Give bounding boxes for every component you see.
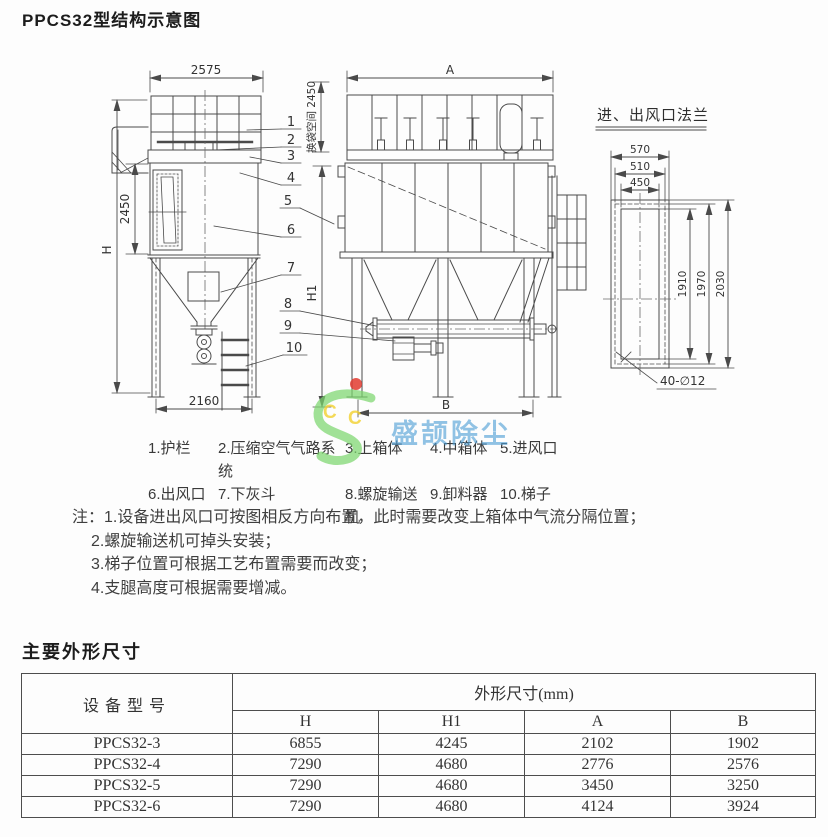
cell-B: 2576: [671, 755, 816, 776]
flange-view-title: 进、出风口法兰: [597, 107, 709, 124]
legend-item: 3.上箱体: [345, 437, 430, 483]
dim-label-450: 450: [630, 177, 650, 189]
cell-H: 7290: [233, 755, 379, 776]
note-line-1: 注：1.设备进出风口可按图相反方向布置，此时需要改变上箱体中气流分隔位置；: [72, 506, 645, 530]
callout-7: 7: [287, 261, 295, 276]
callout-1: 1: [287, 115, 295, 130]
dim-label-1910: 1910: [677, 271, 689, 298]
bolt-spec-label: 40-∅12: [660, 374, 705, 388]
legend-item: 5.进风口: [500, 437, 558, 483]
pulse-valves: [375, 118, 543, 150]
note-line-2: 2.螺旋输送机可掉头安装；: [91, 530, 645, 554]
col-header-H1: H1: [379, 711, 525, 734]
cell-A: 2102: [525, 734, 671, 755]
flange-view: 进、出风口法兰 570 510 450 1910 1970 2030: [596, 107, 734, 389]
note-line-4: 4.支腿高度可根据需要增减。: [91, 577, 645, 601]
dim-label-510: 510: [630, 161, 650, 173]
callout-leaders: 1 2 3 4 5 6 7 8 9 10: [214, 115, 395, 366]
notes-prefix: 注：: [72, 509, 104, 526]
cell-H1: 4245: [379, 734, 525, 755]
cell-A: 4124: [525, 797, 671, 818]
cell-H1: 4680: [379, 776, 525, 797]
section-heading: 主要外形尺寸: [22, 638, 142, 664]
callout-9: 9: [284, 319, 292, 334]
dim-label-A: A: [446, 63, 455, 77]
catalog-page: { "page_title": "PPCS32型结构示意图", "drawing…: [0, 0, 828, 837]
table-row: PPCS32-6 7290 4680 4124 3924: [22, 797, 816, 818]
cell-B: 1902: [671, 734, 816, 755]
dim-label-2450: 2450: [118, 194, 132, 225]
dim-label-570: 570: [630, 144, 650, 156]
dim-label-2160: 2160: [189, 394, 220, 408]
cell-B: 3924: [671, 797, 816, 818]
cell-H1: 4680: [379, 755, 525, 776]
cell-A: 3450: [525, 776, 671, 797]
cell-model: PPCS32-4: [22, 755, 233, 776]
cell-A: 2776: [525, 755, 671, 776]
callout-8: 8: [284, 297, 292, 312]
cell-B: 3250: [671, 776, 816, 797]
dim-label-H: H: [100, 245, 114, 254]
col-header-H: H: [233, 711, 379, 734]
legend-item: 2.压缩空气气路系统: [218, 437, 345, 483]
dim-label-2030: 2030: [715, 271, 727, 298]
callout-4: 4: [287, 171, 295, 186]
col-header-group: 外形尺寸(mm): [233, 674, 816, 711]
callout-6: 6: [287, 223, 295, 238]
table-row: PPCS32-3 6855 4245 2102 1902: [22, 734, 816, 755]
dim-label-B: B: [442, 398, 450, 412]
col-header-B: B: [671, 711, 816, 734]
dim-label-bag-space: 换袋空间 2450: [305, 81, 318, 153]
dim-label-2575: 2575: [191, 63, 222, 77]
callout-3: 3: [287, 149, 295, 164]
table-row: PPCS32-5 7290 4680 3450 3250: [22, 776, 816, 797]
dim-label-H1: H1: [305, 285, 319, 302]
notes-block: 注：1.设备进出风口可按图相反方向布置，此时需要改变上箱体中气流分隔位置； 2.…: [72, 506, 645, 600]
cell-model: PPCS32-6: [22, 797, 233, 818]
legend-item: 4.中箱体: [430, 437, 500, 483]
dim-label-1970: 1970: [696, 271, 708, 298]
cell-H: 7290: [233, 776, 379, 797]
middle-dims: 换袋空间 2450 H1: [305, 81, 331, 407]
cell-model: PPCS32-5: [22, 776, 233, 797]
technical-drawing: 2575 H 2450: [0, 0, 828, 432]
col-header-A: A: [525, 711, 671, 734]
callout-5: 5: [284, 194, 292, 209]
callout-2: 2: [287, 133, 295, 148]
cell-H: 6855: [233, 734, 379, 755]
legend-item: 1.护栏: [148, 437, 218, 483]
side-view: 2575 H 2450: [100, 63, 263, 413]
table-header-row-1: 设备型号 外形尺寸(mm): [22, 674, 816, 711]
front-view: A: [338, 63, 586, 417]
cell-H: 7290: [233, 797, 379, 818]
legend-row-1: 1.护栏 2.压缩空气气路系统 3.上箱体 4.中箱体 5.进风口: [148, 437, 748, 483]
col-header-model: 设备型号: [22, 674, 233, 734]
dimensions-table: 设备型号 外形尺寸(mm) H H1 A B PPCS32-3 6855 424…: [21, 673, 816, 818]
cell-model: PPCS32-3: [22, 734, 233, 755]
note-line-3: 3.梯子位置可根据工艺布置需要而改变；: [91, 553, 645, 577]
cell-H1: 4680: [379, 797, 525, 818]
table-row: PPCS32-4 7290 4680 2776 2576: [22, 755, 816, 776]
callout-10: 10: [286, 341, 303, 356]
